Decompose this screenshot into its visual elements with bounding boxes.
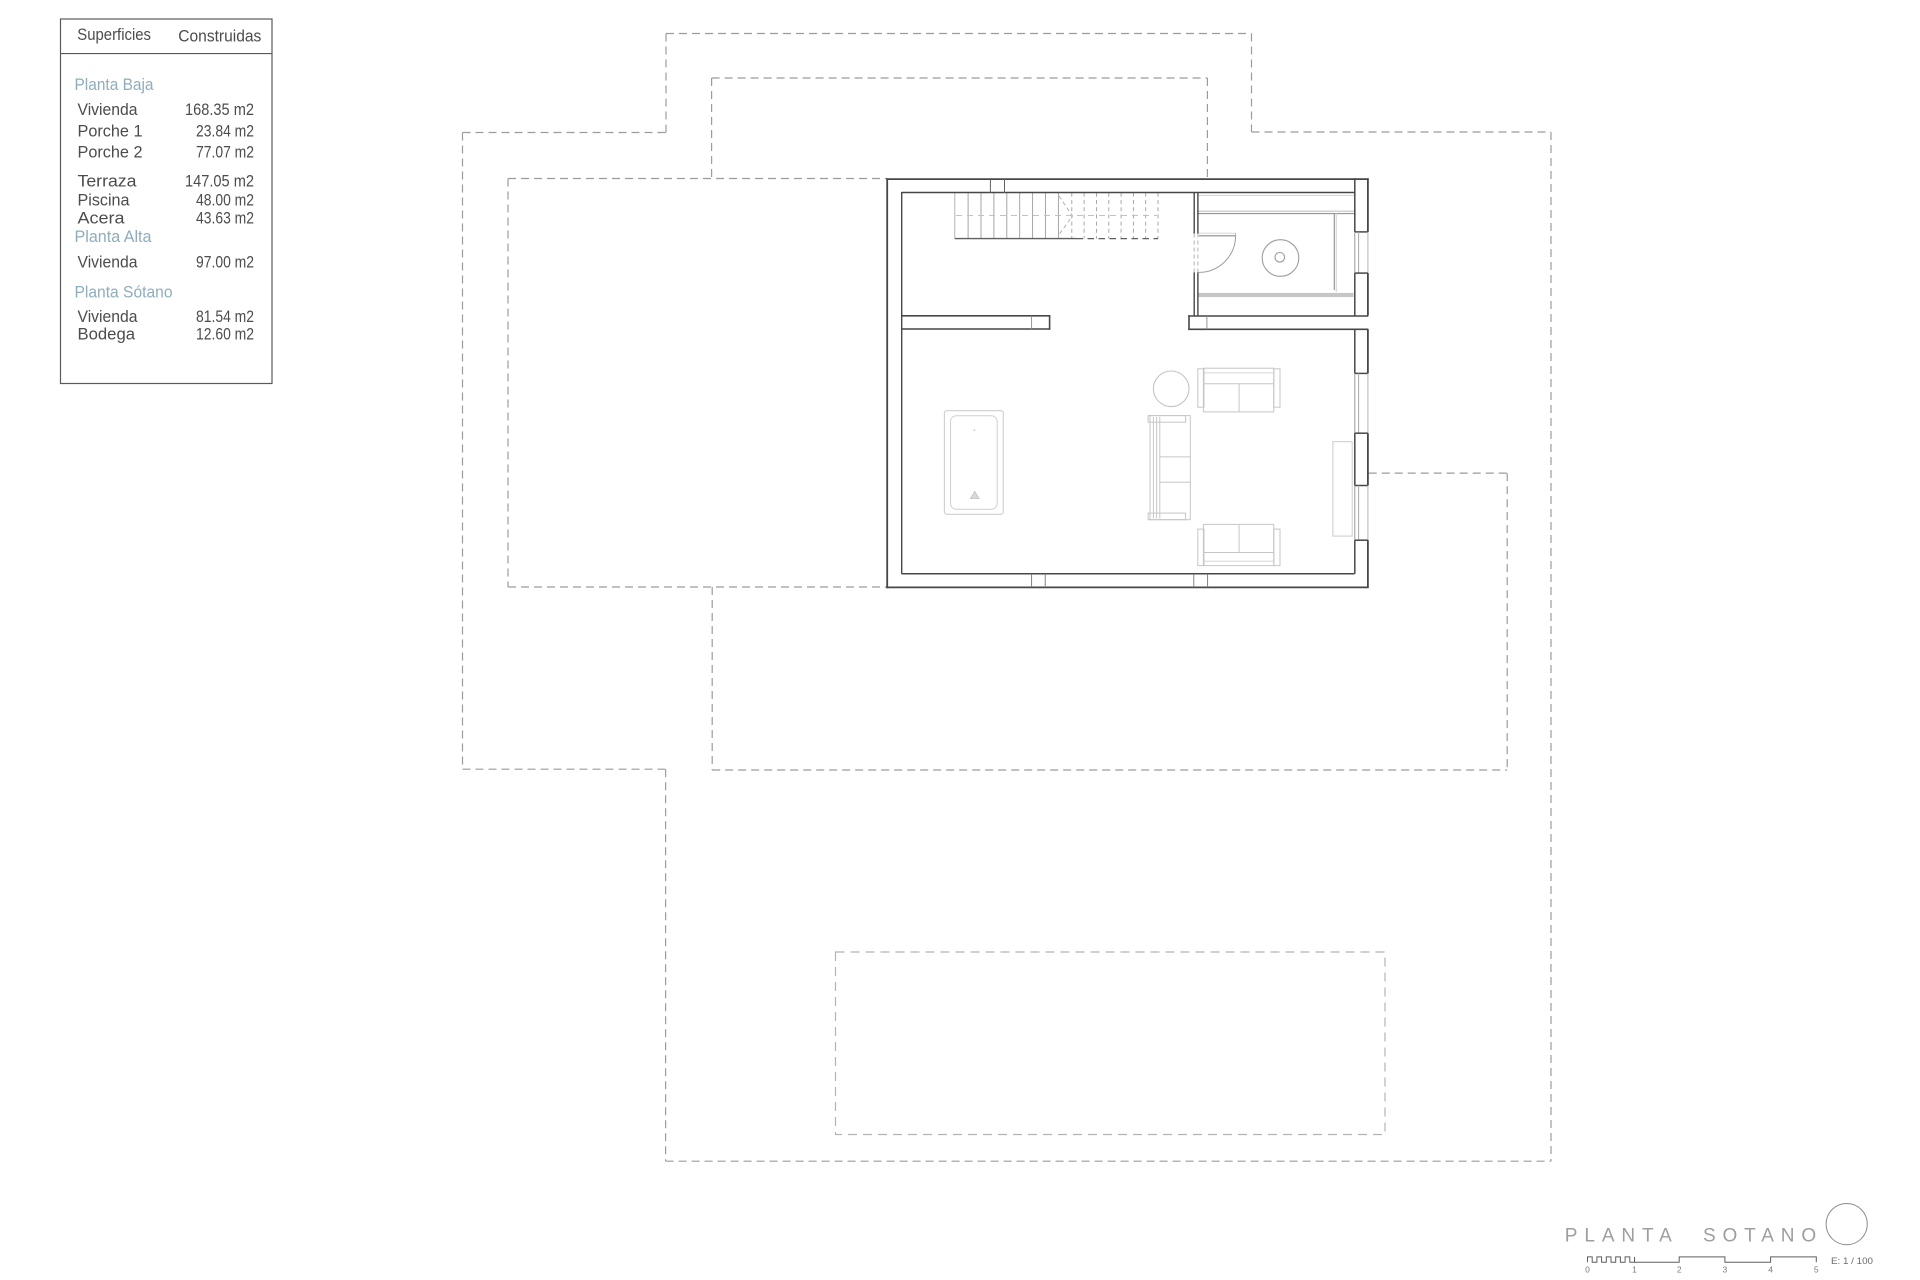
svg-text:Vivienda: Vivienda <box>78 101 139 119</box>
svg-text:0: 0 <box>1585 1265 1590 1275</box>
svg-text:Vivienda: Vivienda <box>78 308 139 326</box>
svg-text:3: 3 <box>1723 1265 1728 1275</box>
svg-text:48.00 m2: 48.00 m2 <box>196 192 254 210</box>
svg-text:Vivienda: Vivienda <box>78 253 139 271</box>
svg-text:Porche 2: Porche 2 <box>78 143 143 161</box>
svg-text:Acera: Acera <box>78 210 126 228</box>
svg-text:Piscina: Piscina <box>78 192 131 210</box>
svg-text:43.63 m2: 43.63 m2 <box>196 210 254 228</box>
svg-text:77.07 m2: 77.07 m2 <box>196 143 254 161</box>
svg-text:Terraza: Terraza <box>78 173 138 191</box>
svg-text:81.54 m2: 81.54 m2 <box>196 308 254 326</box>
svg-text:Superficies: Superficies <box>77 26 151 44</box>
svg-text:5: 5 <box>1814 1265 1819 1275</box>
svg-text:23.84 m2: 23.84 m2 <box>196 122 254 140</box>
svg-text:4: 4 <box>1768 1265 1773 1275</box>
svg-text:2: 2 <box>1677 1265 1682 1275</box>
svg-text:97.00 m2: 97.00 m2 <box>196 253 254 271</box>
svg-text:Planta Sótano: Planta Sótano <box>75 284 173 302</box>
svg-text:Planta Baja: Planta Baja <box>75 76 155 94</box>
svg-text:Bodega: Bodega <box>78 326 136 344</box>
svg-text:1: 1 <box>1632 1265 1637 1275</box>
svg-text:Porche 1: Porche 1 <box>78 122 143 140</box>
svg-text:Construidas: Construidas <box>178 28 261 46</box>
svg-text:Planta Alta: Planta Alta <box>75 228 153 246</box>
svg-text:E: 1 / 100: E: 1 / 100 <box>1831 1256 1873 1267</box>
svg-text:12.60 m2: 12.60 m2 <box>196 326 254 344</box>
svg-text:168.35 m2: 168.35 m2 <box>185 101 254 119</box>
svg-text:147.05 m2: 147.05 m2 <box>185 173 254 191</box>
